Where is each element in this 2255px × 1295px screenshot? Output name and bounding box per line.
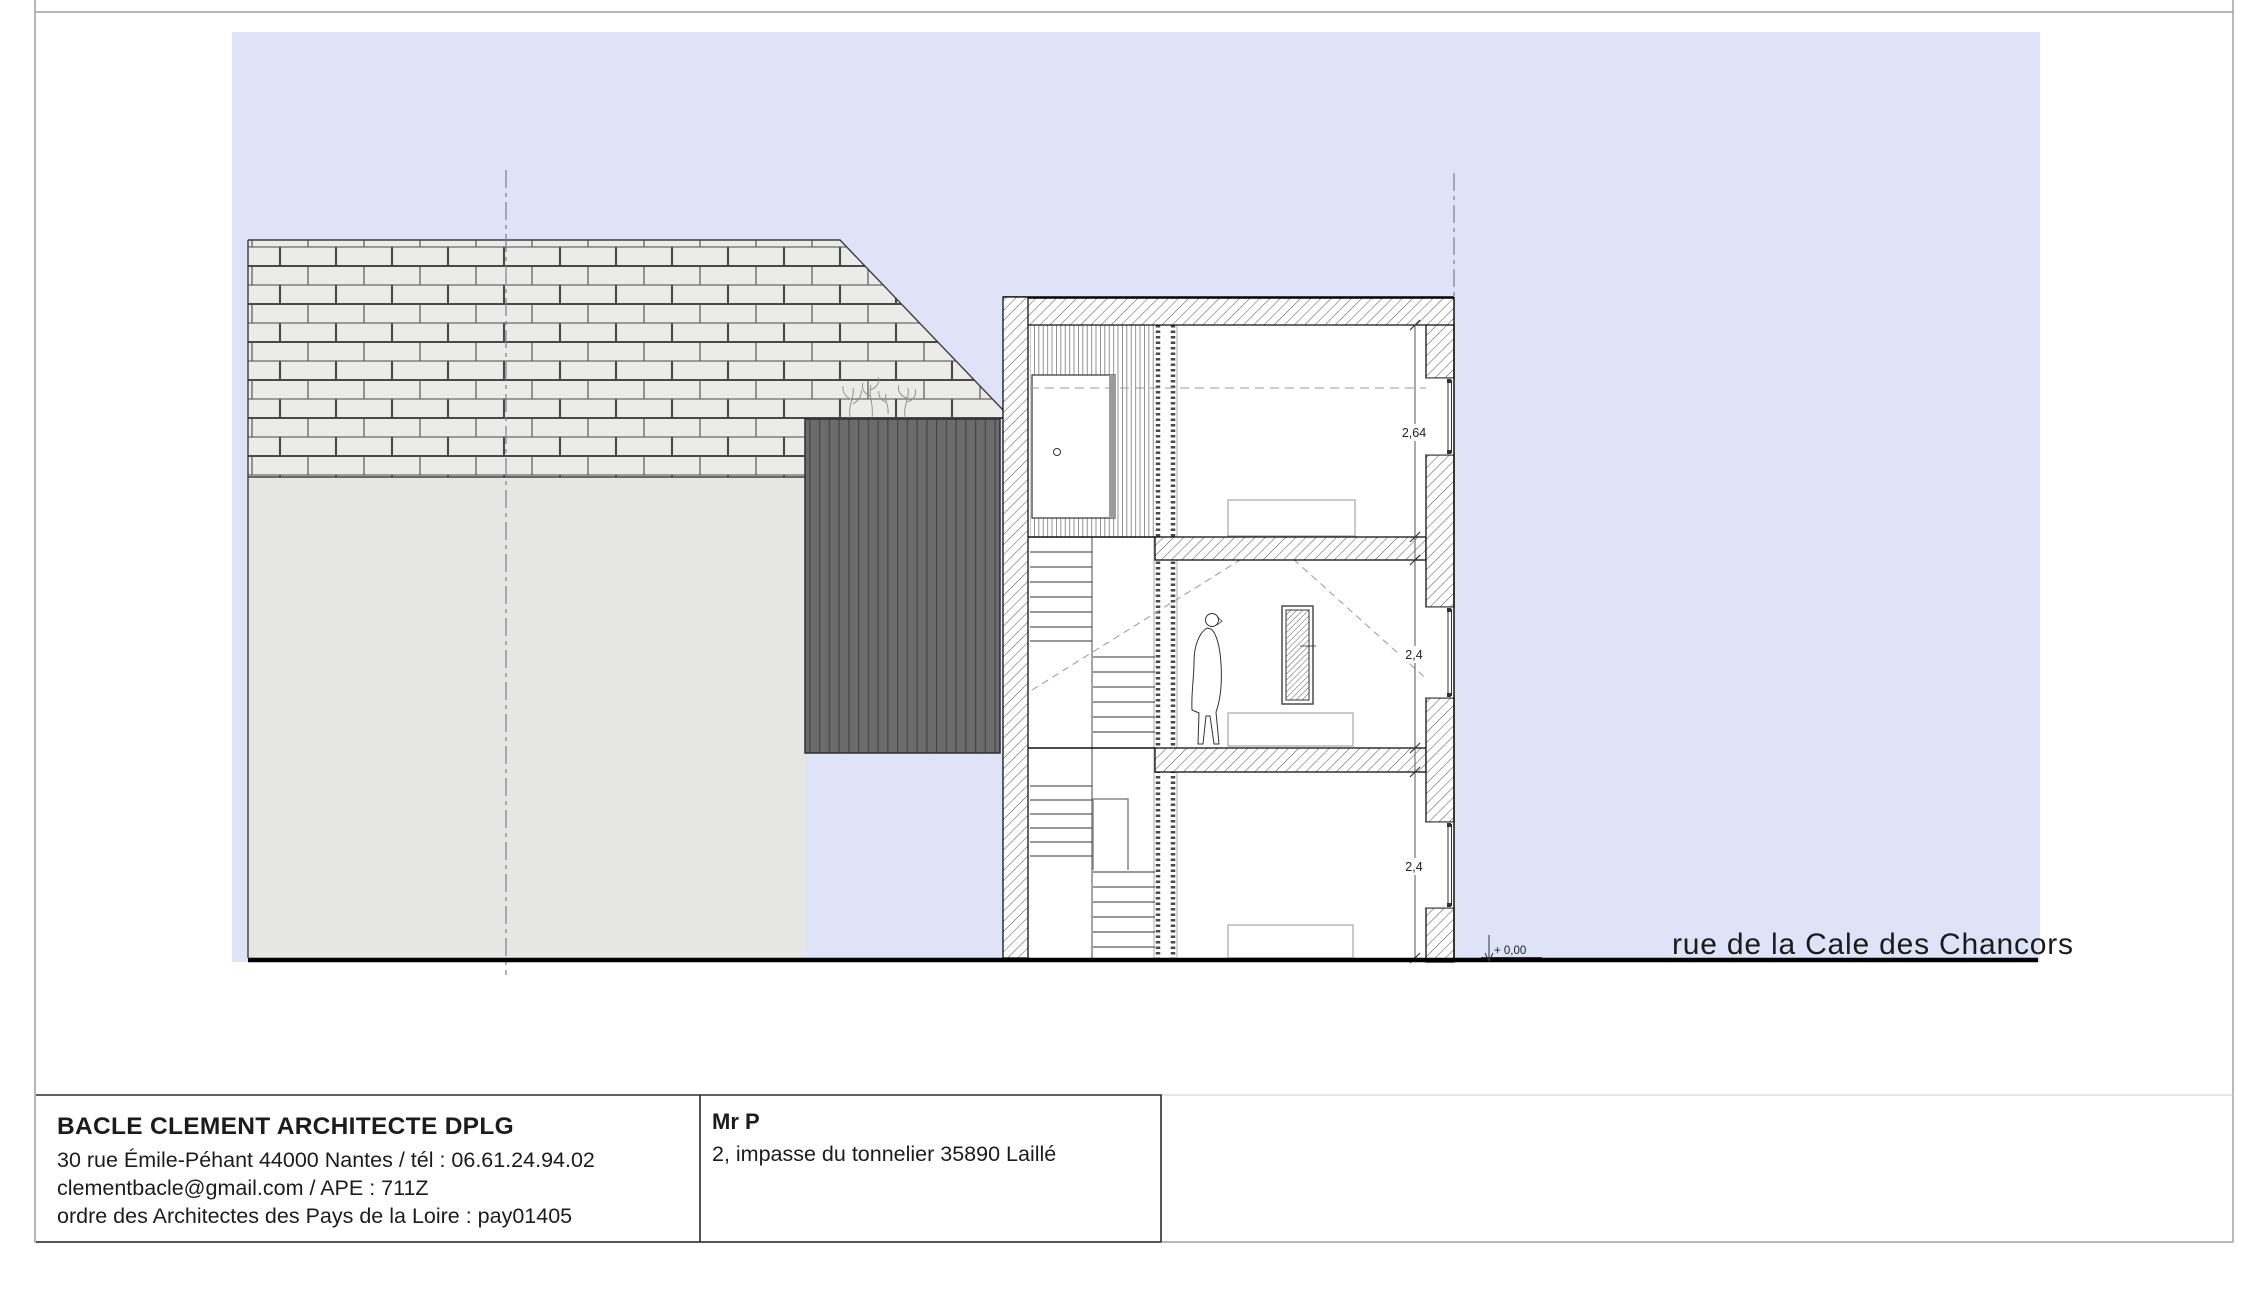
wall-pier-4 — [1426, 908, 1454, 962]
client-name: Mr P — [712, 1109, 760, 1134]
stove-flue — [1286, 610, 1309, 700]
wall-pier-1 — [1426, 325, 1454, 378]
dimension-label-ground: 2,4 — [1405, 860, 1422, 874]
client-address: 2, impasse du tonnelier 35890 Laillé — [712, 1142, 1056, 1166]
stair-door-edge — [1109, 375, 1116, 518]
street-label: rue de la Cale des Chancors — [1672, 928, 2074, 961]
floor-slab-middle — [1155, 748, 1426, 772]
architect-info: BACLE CLEMENT ARCHITECTE DPLG 30 rue Émi… — [57, 1113, 595, 1228]
party-wall-left — [1003, 297, 1028, 958]
architect-order: ordre des Architectes des Pays de la Loi… — [57, 1204, 572, 1228]
stair-slat-screen — [1030, 325, 1155, 537]
garden-fence — [805, 377, 1000, 753]
door-handle-icon — [1054, 449, 1061, 456]
stair-door — [1032, 375, 1115, 518]
dimension-label-top: 2,64 — [1402, 426, 1426, 440]
roof-slab — [1003, 297, 1454, 325]
elevation-drawing: 2,64 2,4 2,4 + 0,00 rue de la Cale des C… — [0, 0, 2255, 1295]
drawing-sheet: 2,64 2,4 2,4 + 0,00 rue de la Cale des C… — [0, 0, 2255, 1295]
level-marker-label: + 0,00 — [1494, 945, 1526, 957]
wall-pier-2 — [1426, 455, 1454, 607]
title-block: BACLE CLEMENT ARCHITECTE DPLG 30 rue Émi… — [36, 1095, 1161, 1242]
client-info: Mr P 2, impasse du tonnelier 35890 Laill… — [712, 1109, 1056, 1166]
window-top-floor — [1426, 378, 1454, 455]
dimension-label-middle: 2,4 — [1405, 648, 1422, 662]
floor-slab-top — [1155, 537, 1426, 560]
wall-pier-3 — [1426, 698, 1454, 822]
architect-address: 30 rue Émile-Péhant 44000 Nantes / tél :… — [57, 1147, 595, 1172]
architect-name: BACLE CLEMENT ARCHITECTE DPLG — [57, 1113, 514, 1140]
architect-email: clementbacle@gmail.com / APE : 711Z — [57, 1176, 429, 1200]
fence-boards — [805, 419, 1000, 753]
neighbor-render-wall — [248, 477, 805, 962]
